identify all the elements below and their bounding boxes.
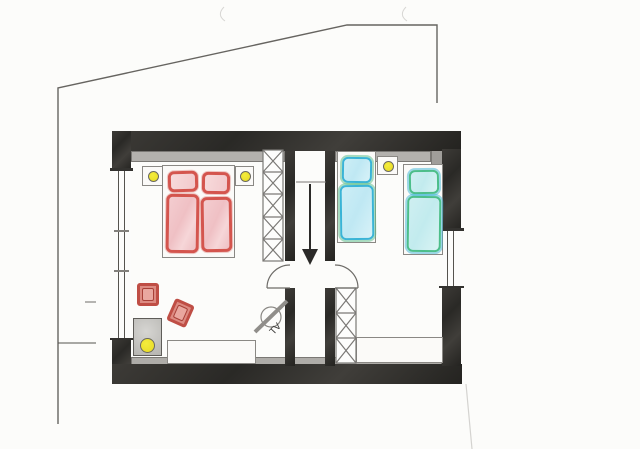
pillow (202, 172, 230, 194)
floor-plan-scan: TV (0, 0, 640, 449)
window-mullion (114, 230, 129, 232)
seat-cushion (137, 283, 159, 306)
duvet (166, 194, 200, 253)
duvet (340, 185, 375, 240)
tv-circle (261, 307, 281, 327)
stairs-down-arrow-head (302, 249, 318, 265)
window-left (112, 168, 131, 340)
window-cap (439, 286, 464, 289)
wardrobe-symbol-right (336, 288, 356, 363)
pillow (168, 171, 199, 193)
door-right-bedroom (335, 265, 358, 288)
lamp-dot (140, 338, 155, 353)
desk-right (356, 337, 443, 363)
single-bed-frame-right (403, 164, 443, 255)
lamp-dot (148, 171, 159, 182)
nightstand-between-beds (377, 156, 398, 175)
window-pane-line (124, 170, 126, 338)
duvet (201, 197, 233, 252)
wardrobe-symbol-left (263, 150, 283, 261)
pillow (342, 157, 372, 184)
nightstand-left (142, 166, 163, 186)
window-pane-line (453, 230, 455, 286)
tv-mount-line (255, 301, 287, 332)
single-bed-frame-left (337, 151, 376, 243)
hall-wall-right-upper (325, 151, 335, 261)
double-bed-frame (162, 165, 235, 258)
window-cap (110, 168, 133, 171)
hall-wall-left-lower (285, 288, 295, 366)
tv-label: TV (268, 321, 285, 338)
nightstand-right (235, 166, 254, 186)
seat-cushion-inner (142, 288, 154, 301)
table-with-lamp (133, 318, 162, 356)
wall-lining-top-left (131, 151, 285, 162)
window-pane-line (447, 230, 449, 286)
scan-mark-right (402, 7, 407, 21)
sideboard-left (167, 340, 256, 364)
window-mullion (114, 270, 129, 272)
duvet (407, 196, 442, 252)
wall-right-upper (442, 149, 461, 230)
wall-top (112, 131, 461, 151)
scan-mark-left (220, 7, 225, 21)
window-pane-line (118, 170, 120, 338)
stairs-symbol (296, 182, 326, 265)
wall-left-upper (112, 131, 131, 170)
hall-wall-right-lower (325, 288, 335, 366)
tv-symbol: TV (255, 301, 287, 338)
faint-crease-line (466, 384, 472, 449)
window-cap (110, 338, 133, 341)
wall-right-lower (442, 286, 461, 366)
wall-bottom (112, 364, 462, 384)
door-left-bedroom (267, 265, 290, 288)
seat-cushion-inner (173, 304, 189, 321)
window-right (442, 228, 461, 288)
pillow (409, 170, 439, 195)
lamp-dot (383, 161, 394, 172)
seat-cushion-rotated (166, 298, 195, 328)
hall-wall-left-upper (285, 151, 295, 261)
lamp-dot (240, 171, 251, 182)
